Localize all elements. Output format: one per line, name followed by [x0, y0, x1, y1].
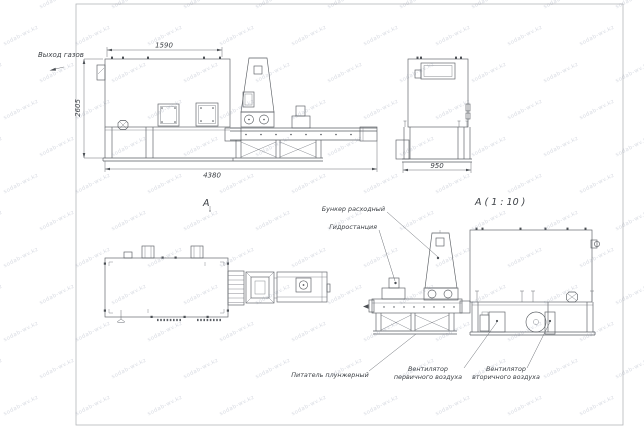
end-view: 950 [396, 57, 472, 173]
callout-feed-hopper: Бункер расходный [322, 205, 385, 213]
anchor-symbol [117, 310, 125, 323]
dim-950: 950 [403, 162, 471, 173]
detail-feeder-support [373, 313, 457, 334]
detail-hydraulic-station [382, 278, 405, 299]
callout-hydraulic-station: Гидростанция [329, 223, 377, 231]
secondary-fan [526, 312, 555, 334]
gas-outlet-stub [97, 65, 105, 80]
detail-hopper [424, 230, 458, 300]
primary-fan [480, 312, 505, 332]
detail-title: A ( 1 : 10 ) [474, 197, 525, 208]
flange-octagon [118, 121, 128, 130]
detail-view: A ( 1 : 10 ) Бункер расходный Гидростанц… [291, 197, 599, 381]
detail-feeder [363, 299, 462, 313]
conveyor-support [233, 140, 323, 161]
end-body [408, 59, 468, 127]
gas-outlet-label: Выход газов [38, 51, 84, 59]
end-top-hatch [415, 63, 455, 79]
deck-box-2 [196, 103, 218, 126]
dim-1590-value: 1590 [155, 42, 173, 50]
dim-2605: 2605 [74, 59, 103, 158]
side-view: 1590 2605 4380 Выход газов [38, 42, 377, 180]
callout-secondary-fan-2: вторичного воздуха [472, 373, 540, 381]
plan-view: A [104, 198, 330, 323]
section-label-a: A [202, 198, 210, 209]
drawing-sheet: 1590 2605 4380 Выход газов [0, 0, 644, 430]
callout-primary-fan-1: Вентилятор [408, 365, 448, 373]
callout-secondary-fan-1: Вентилятор [486, 365, 526, 373]
sheet-frame [76, 4, 623, 425]
furnace-body [105, 59, 230, 127]
callout-primary-fan-2: первичного воздуха [394, 373, 462, 381]
feed-hopper-side [241, 58, 274, 127]
dim-950-value: 950 [430, 162, 444, 170]
secondary-box [292, 106, 310, 128]
dim-2605-value: 2605 [74, 99, 82, 117]
callout-plunger-feeder: Питатель плунжерный [291, 371, 368, 379]
plan-feeder [228, 271, 330, 305]
deck-box-1 [158, 104, 179, 126]
detail-furnace-body [460, 228, 600, 313]
plan-body [105, 258, 228, 317]
furnace-base-frame [103, 127, 233, 161]
dim-1590: 1590 [107, 42, 222, 58]
gas-outlet-arrow [50, 67, 65, 71]
plan-stubs [124, 246, 203, 258]
cad-drawing: 1590 2605 4380 Выход газов [0, 0, 644, 430]
conveyor [230, 127, 377, 141]
dim-4380-value: 4380 [203, 172, 221, 180]
